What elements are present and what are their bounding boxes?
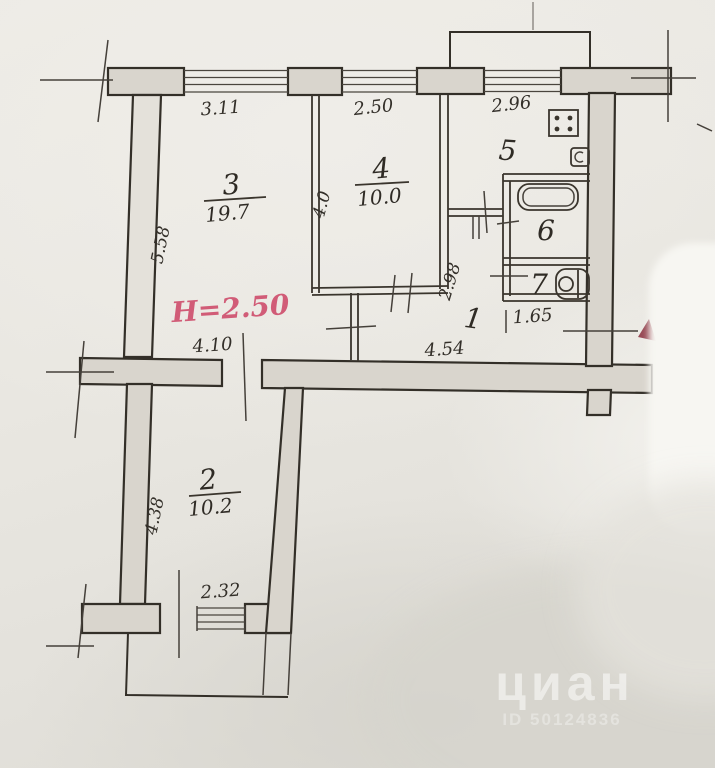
- wall-pier: [561, 68, 671, 94]
- hall-number: 1: [462, 301, 484, 336]
- floorplan-drawing: 3.11 2.50 2.96 5.58 4.0 2.98 4.10 4.54 1…: [0, 0, 715, 768]
- door-tick: [484, 191, 487, 233]
- dim-wc-width: 1.65: [512, 305, 553, 329]
- floorplan-photo: 3.11 2.50 2.96 5.58 4.0 2.98 4.10 4.54 1…: [0, 0, 715, 768]
- dim-room2-window: 2.32: [199, 580, 241, 604]
- room3-area: 19.7: [204, 199, 251, 227]
- window-kitchen: [484, 71, 561, 92]
- sink-icon: [571, 148, 589, 166]
- top-exterior-wall: [108, 2, 671, 95]
- bathtub-icon: [518, 184, 578, 210]
- wall-pier: [108, 68, 184, 95]
- ceiling-height-note: H=2.50: [169, 288, 291, 329]
- dim-hall-left: 4.10: [191, 334, 233, 358]
- watermark-id: ID 50124836: [502, 710, 621, 729]
- right-exterior-wall: [586, 93, 615, 415]
- kitchen-number: 5: [498, 133, 518, 167]
- room4-number: 4: [370, 151, 392, 186]
- watermark-brand: циан: [495, 655, 634, 711]
- bath-number: 6: [537, 214, 555, 247]
- dim-top-left: 3.11: [200, 97, 241, 121]
- room3-number: 3: [221, 167, 242, 201]
- hall-partition: [326, 293, 376, 361]
- door-tick: [497, 221, 519, 224]
- dim-top-mid: 2.50: [351, 95, 394, 120]
- room4-area: 10.0: [356, 183, 403, 211]
- watermark: циан ID 50124836: [495, 655, 634, 729]
- dim-hall-right: 4.54: [423, 338, 465, 362]
- room2-area: 10.2: [187, 493, 233, 521]
- dimension-labels: 3.11 2.50 2.96 5.58 4.0 2.98 4.10 4.54 1…: [141, 92, 553, 603]
- room2-number: 2: [197, 462, 219, 497]
- room-labels: 3 19.7 4 10.0 5 6 7 1 2 10.2: [187, 133, 555, 520]
- wc-number: 7: [530, 268, 548, 301]
- door-leaf: [473, 216, 479, 239]
- kitchen-entry-wall: [448, 191, 503, 239]
- window-room3: [184, 71, 288, 93]
- balcony-outline: [126, 633, 291, 697]
- door-tick: [243, 333, 246, 421]
- window-room2: [197, 606, 245, 631]
- dim-top-right: 2.96: [489, 92, 532, 117]
- top-balcony-outline: [450, 32, 590, 68]
- wall-pier: [288, 68, 342, 95]
- stove-icon: [549, 110, 578, 136]
- wall-pier: [417, 68, 484, 94]
- window-room4: [342, 71, 417, 93]
